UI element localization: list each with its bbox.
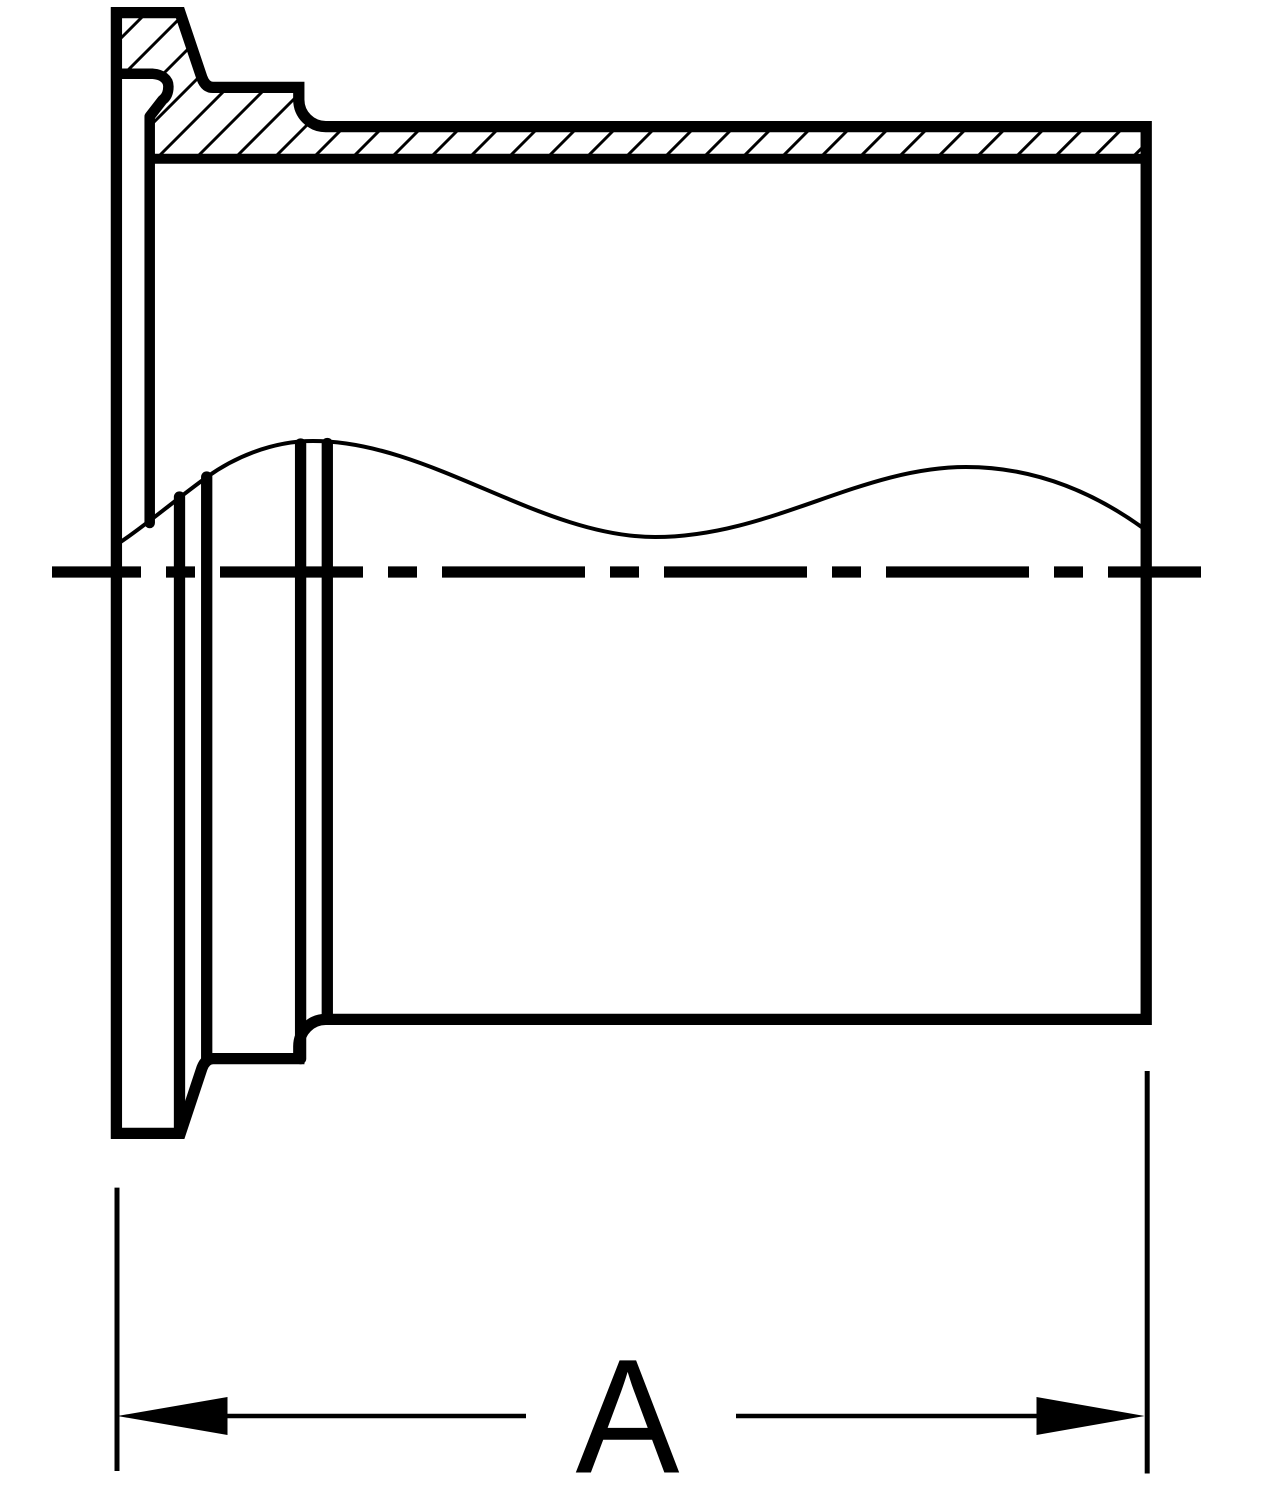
svg-text:A: A — [576, 1325, 680, 1500]
